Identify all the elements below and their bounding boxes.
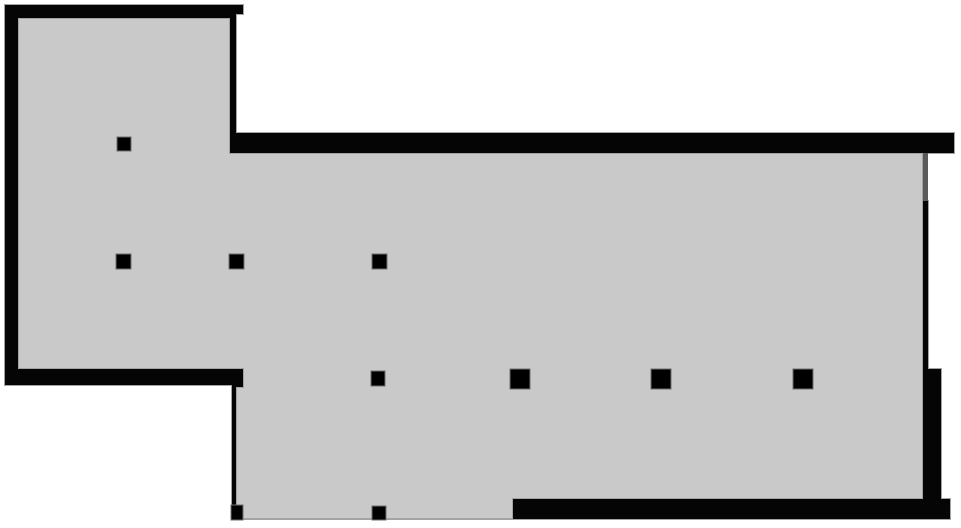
column-large [651,369,671,389]
column-small [116,254,131,269]
pier [372,506,386,520]
column-small [371,371,385,386]
column-small [229,254,244,269]
wall-top-left [5,5,233,18]
wall-right-thick [923,369,941,519]
column-large [793,369,813,389]
column-large [510,369,530,389]
wall-left [5,5,18,385]
opening-right-sliver [923,153,928,201]
pier [231,505,243,520]
floor-area [18,18,923,519]
floor-plan-canvas [0,0,961,528]
column-small [117,137,131,151]
floor-plan [0,0,961,528]
wall-bottom [513,499,950,519]
wall-bottom-left [5,369,233,385]
wall-right-thin [923,201,928,369]
wall-extension-left-thin [232,385,236,505]
wall-hall-top [230,133,954,153]
wall-top-left-notch [233,5,243,14]
wall-room-divider-right [230,14,236,133]
column-small [372,254,387,269]
wall-bottom-left-step [233,369,243,387]
